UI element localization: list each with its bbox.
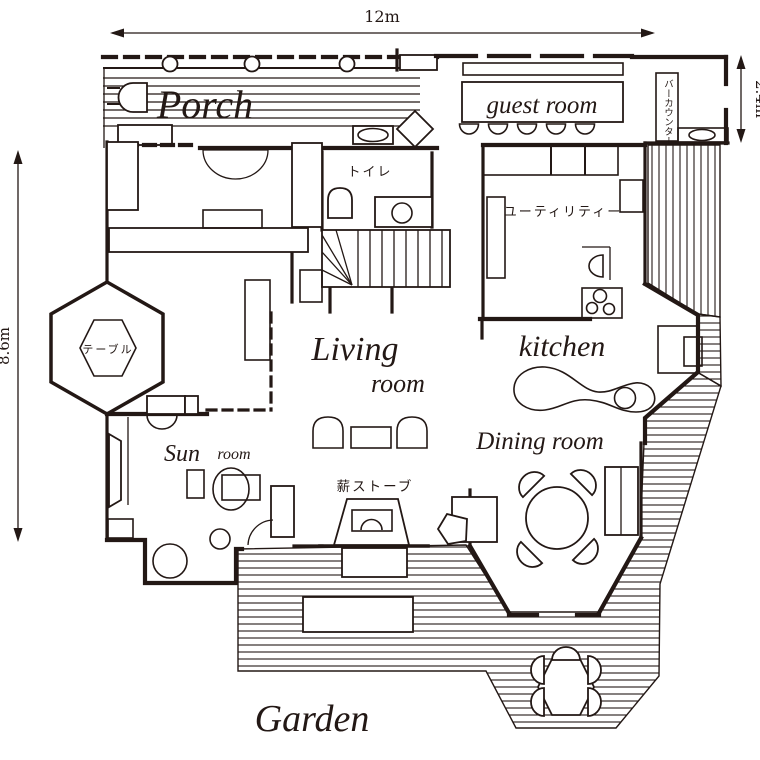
guest-shelf	[463, 63, 623, 75]
dimension-left: 8.6m	[0, 150, 23, 542]
door-cabinet	[271, 486, 294, 537]
utility-room	[483, 145, 643, 318]
coffee-table	[351, 427, 391, 448]
porch	[103, 50, 437, 148]
utility-label: ユーティリティー	[504, 204, 622, 219]
dining-label: Dining room	[475, 428, 604, 455]
garden-bench	[303, 597, 413, 632]
table-label: テーブル	[82, 342, 133, 356]
nook-chair	[147, 415, 177, 429]
sunroom-cabinet	[108, 519, 133, 538]
armchair	[397, 417, 427, 448]
shoe-cabinet	[109, 228, 308, 252]
door-swing-arc	[248, 520, 273, 545]
burner	[594, 290, 607, 303]
nook-sideboard-end	[185, 396, 198, 414]
floor-plan-drawing: 12m 8.6m 2.4m Porch guest room バーカウンター ト…	[0, 0, 760, 760]
toilet-room	[328, 188, 432, 227]
living-label-2: room	[371, 369, 425, 398]
porch-lamp	[119, 83, 148, 112]
entrance-doormat	[203, 150, 268, 179]
dining-table	[526, 487, 588, 549]
floor-plan: 12m 8.6m 2.4m Porch guest room バーカウンター ト…	[0, 0, 760, 760]
sunroom-label-2: room	[217, 446, 250, 463]
garden-deck	[238, 372, 721, 728]
sunroom-label-1: Sun	[164, 441, 200, 467]
window-seat	[109, 434, 121, 507]
stair-closet	[300, 270, 322, 302]
chair	[547, 124, 566, 134]
toilet-bowl	[328, 188, 352, 218]
nook-sideboard	[147, 396, 185, 414]
sunroom-step-wall	[107, 540, 242, 583]
dimension-top: 12m	[110, 7, 655, 38]
chair	[489, 124, 508, 134]
chair	[518, 124, 537, 134]
porch-label: Porch	[156, 82, 253, 127]
bookshelf	[245, 280, 270, 360]
dimension-top-label: 12m	[364, 7, 400, 26]
porch-post	[245, 57, 260, 72]
living-label-1: Living	[311, 331, 399, 368]
burner	[604, 304, 615, 315]
wood-stove-label: 薪ストーブ	[337, 478, 414, 494]
stove-body	[334, 499, 409, 545]
plant-pot	[210, 529, 230, 549]
armchair	[313, 417, 343, 448]
staircase	[300, 230, 450, 302]
dimension-right: 2.4m	[737, 55, 760, 143]
utility-sink	[589, 255, 603, 277]
side-table	[187, 470, 204, 498]
burner	[587, 303, 598, 314]
chair	[576, 124, 595, 134]
hall-closet	[292, 143, 322, 227]
porch-end-box	[400, 55, 437, 70]
lounge-ottoman	[222, 475, 260, 500]
toilet-label: トイレ	[347, 164, 392, 179]
guest-room-label: guest room	[487, 92, 598, 119]
porch-post	[163, 57, 178, 72]
utility-box	[620, 180, 643, 212]
bar-sink-oval	[689, 130, 715, 141]
stove-base	[342, 548, 407, 577]
kitchen-sink	[615, 388, 636, 409]
garden-label: Garden	[255, 698, 370, 740]
porch-diamond-stool	[397, 111, 433, 147]
chair	[460, 124, 479, 134]
porch-post	[340, 57, 355, 72]
bar-counter-label: バーカウンター	[662, 79, 674, 146]
entry-closet	[107, 142, 138, 210]
entry	[107, 142, 322, 252]
dimension-left-label: 8.6m	[0, 327, 13, 365]
dimension-right-label: 2.4m	[752, 80, 760, 118]
washer	[487, 197, 505, 278]
plant-pot	[153, 544, 187, 578]
cabinet-top-box	[203, 210, 262, 228]
desk-chair	[438, 514, 467, 544]
kitchen-label: kitchen	[519, 330, 606, 363]
